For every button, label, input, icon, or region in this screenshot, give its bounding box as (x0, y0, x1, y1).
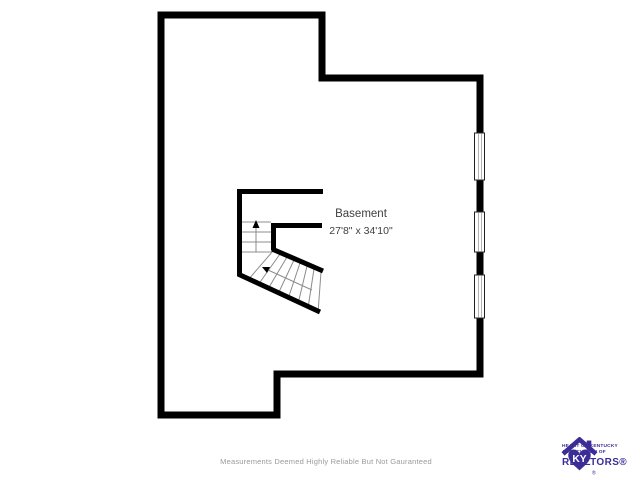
disclaimer-text: Measurements Deemed Highly Reliable But … (0, 457, 640, 466)
room-dimensions: 27'8" x 34'10" (280, 225, 442, 238)
window-2 (475, 212, 485, 252)
room-label: Basement 27'8" x 34'10" (280, 208, 442, 238)
brand-logo: KY ® HEART OF KENTUCKY ASSOCIATION OF RE… (561, 437, 627, 468)
windows (475, 133, 485, 318)
logo-monogram: KY (572, 454, 586, 465)
logo-registered-mark: ® (592, 469, 596, 476)
floorplan-drawing (0, 0, 640, 480)
room-name: Basement (280, 208, 442, 221)
window-3 (475, 275, 485, 318)
realtor-house-heart-icon: KY ® (561, 437, 598, 477)
window-1 (475, 133, 485, 180)
floorplan-canvas: Basement 27'8" x 34'10" Measurements Dee… (0, 0, 640, 480)
